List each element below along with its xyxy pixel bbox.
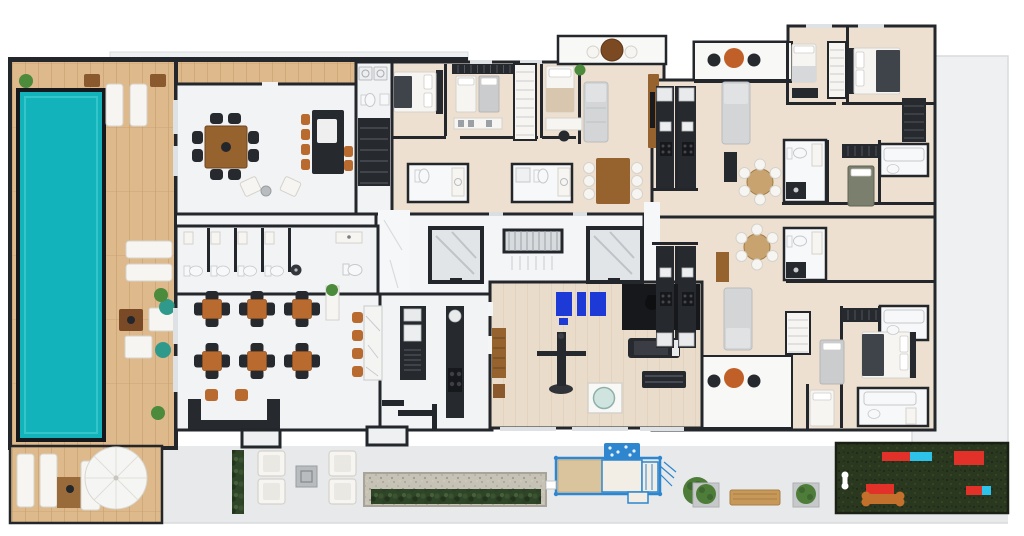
- shrub-foliage-4: [807, 494, 813, 500]
- pool: [18, 90, 104, 440]
- gourmet-island-stools-2: [301, 129, 310, 140]
- a-bed3-blanket: [546, 88, 574, 112]
- gourmet-island-stools-6: [344, 160, 353, 171]
- interior-walls-4: [392, 136, 446, 139]
- cable-machine-pulley: [558, 333, 564, 339]
- b-guest-pillow: [851, 169, 871, 176]
- kitchen-island-stools-3: [352, 348, 363, 359]
- deck-plants-green-1: [154, 288, 168, 302]
- exercise-ball: [594, 388, 615, 409]
- a-bed3-pillow: [549, 69, 571, 77]
- interior-walls-2: [540, 64, 543, 138]
- a-desk-books-1: [458, 120, 464, 127]
- gourmet-dining-chairs-3: [210, 169, 223, 180]
- a-dining-chairs-2: [584, 176, 595, 187]
- c-balcony-chairs-2: [748, 375, 761, 388]
- dining-table-top: [203, 300, 222, 319]
- stall-sink: [211, 232, 220, 244]
- core-door-mats-1: [489, 212, 503, 216]
- b-balcony-table: [724, 48, 744, 68]
- patio-planter-boxes-2: [367, 427, 407, 445]
- c-balcony-table: [724, 368, 744, 388]
- sun-loungers-north-1: [106, 84, 123, 126]
- a-dining-chairs-3: [584, 189, 595, 200]
- a-dining-table: [596, 158, 630, 204]
- a-desk-books-3: [486, 120, 492, 127]
- shrub-foliage-1: [699, 487, 705, 493]
- climbing-holds-5: [610, 453, 613, 456]
- dining-table-top: [248, 300, 267, 319]
- gym-exercise-mats-3: [590, 292, 606, 316]
- hedge-vertical: [232, 450, 244, 514]
- kitchen-island-stools-2: [352, 330, 363, 341]
- deck-seat-pads-2: [125, 336, 152, 358]
- dining-table-top: [248, 352, 267, 371]
- agility-hurdle-cyan: [982, 486, 991, 495]
- stall-partition: [207, 228, 210, 272]
- window-glazing-1: [173, 100, 178, 134]
- elevator-sills-1: [450, 278, 462, 283]
- b-bath1-vanity: [812, 144, 822, 166]
- deck-table-bowl: [127, 316, 135, 324]
- pool-side-tables-1: [84, 74, 100, 87]
- coffee-bar-counter-3: [188, 420, 280, 429]
- a-bath2-shower: [516, 168, 530, 182]
- dumbbell-rack: [642, 371, 686, 388]
- playground-sandpit: [558, 460, 602, 492]
- playground-ladder: [546, 481, 556, 489]
- c-stove-burners-8: [690, 301, 693, 304]
- gourmet-island-stools-1: [301, 114, 310, 125]
- b-stove-burners-7: [684, 151, 687, 154]
- sun-loungers-south-2: [40, 454, 57, 507]
- climbing-holds-4: [632, 449, 635, 452]
- c-bath2-toilet: [887, 326, 899, 335]
- shrubs-1: [696, 484, 716, 504]
- floor-plan-stage: [0, 0, 1024, 536]
- a-balcony-chairs-2: [625, 46, 637, 58]
- gourmet-dining-chairs-6: [192, 149, 203, 162]
- c-guest-pillow: [813, 393, 831, 400]
- gourmet-centerpiece: [221, 142, 231, 152]
- interior-walls-24: [675, 86, 678, 188]
- c-tv-stand: [716, 252, 729, 282]
- agility-jump-cyan: [910, 452, 932, 461]
- sun-loungers-mid-2: [126, 264, 172, 281]
- kitchen-counter-east: [446, 306, 464, 418]
- b-dining-table: [747, 169, 773, 195]
- b-bath2-toilet: [887, 165, 899, 174]
- b-closet-east: [902, 98, 926, 142]
- shrubs-2: [796, 484, 816, 504]
- stall-partition: [261, 228, 264, 272]
- kitchen-east-sink: [449, 310, 461, 322]
- parasol-pole: [114, 476, 119, 481]
- b-stove-burners-8: [690, 151, 693, 154]
- patio-armchair-cushions-4: [334, 483, 351, 500]
- b-kitchen-sinks-1: [660, 122, 671, 131]
- a-desk-books-2: [468, 120, 474, 127]
- b-bath2-tub: [884, 148, 924, 161]
- b-tv-stand: [724, 152, 737, 182]
- b-balcony-chairs-1: [708, 54, 721, 67]
- b-dining-chairs-4: [755, 194, 766, 205]
- gym-exercise-mats-4: [559, 318, 568, 325]
- a-single-pillow-1: [458, 78, 474, 85]
- deck-plants-teal-2: [155, 342, 171, 358]
- playground-slide: [642, 462, 658, 492]
- potted-plant-nw: [19, 74, 33, 88]
- c-dining-chairs-3: [767, 251, 778, 262]
- interior-walls-1: [444, 64, 447, 136]
- a-bath1-vanity: [452, 168, 464, 196]
- a-tv-screen: [650, 92, 655, 128]
- playground-posts-2: [658, 456, 662, 460]
- c-bath1-showerhead: [794, 268, 799, 273]
- a-dining-chairs-4: [632, 163, 643, 174]
- gourmet-dining-chairs-8: [248, 149, 259, 162]
- window-glazing-2: [173, 146, 178, 176]
- b-stove-burners-5: [684, 145, 687, 148]
- small-bone-ends-1: [842, 472, 849, 479]
- gym-exercise-mats-1: [556, 292, 572, 316]
- lobby-marble-strip: [378, 210, 410, 298]
- floor-plan-canvas: [0, 0, 1024, 536]
- gym-exercise-mats-2: [577, 292, 586, 316]
- c-bath3-toilet: [868, 410, 880, 419]
- b-kitchen-stoves-2: [682, 142, 694, 156]
- deck-plants-green-2: [151, 406, 165, 420]
- kitchen-island-stools-1: [352, 312, 363, 323]
- umbrella-side-table: [66, 485, 74, 493]
- a-bath2-toilet: [538, 169, 548, 183]
- agility-jump-red: [882, 452, 910, 461]
- window-glazing-4: [173, 356, 178, 392]
- c-stove-burners-1: [662, 295, 665, 298]
- b-single-pillow: [794, 46, 814, 53]
- stove-burners-2: [457, 372, 461, 376]
- playground-posts-3: [554, 492, 558, 496]
- a-plant: [575, 65, 586, 76]
- climbing-holds-1: [608, 446, 611, 449]
- toilet-bowl: [217, 266, 230, 276]
- b-kitchen-fridges-1: [657, 88, 672, 101]
- c-kitchen-stoves-1: [660, 292, 672, 306]
- a-bed-headboard: [436, 70, 443, 114]
- c-stove-burners-6: [690, 295, 693, 298]
- patio-planter-boxes-1: [242, 430, 280, 447]
- c-bath1-toilet: [794, 236, 807, 246]
- a-bath1-toilet: [419, 169, 429, 183]
- gourmet-island-stools-3: [301, 144, 310, 155]
- c-dining-chairs-4: [752, 259, 763, 270]
- a-sofa-chaise: [586, 84, 606, 102]
- swimming-pool: [18, 90, 104, 440]
- gourmet-island-stools-5: [344, 146, 353, 157]
- sun-loungers-south-1: [17, 454, 34, 507]
- b-dining-chairs-1: [755, 159, 766, 170]
- dining-table-top: [293, 300, 312, 319]
- door-openings-1: [262, 82, 278, 87]
- small-bone-ends-2: [842, 483, 849, 490]
- playground-posts-1: [554, 456, 558, 460]
- b-kitchen-fridges-2: [679, 88, 694, 101]
- interior-walls-15: [652, 188, 698, 191]
- stove-burners-3: [450, 382, 454, 386]
- accessible-toilet-bowl: [348, 265, 362, 276]
- climbing-holds-3: [624, 445, 627, 448]
- climbing-holds-2: [616, 450, 619, 453]
- c-dresser: [786, 312, 810, 354]
- shrub-foliage-3: [799, 487, 805, 493]
- dining-table-top: [293, 352, 312, 371]
- patio-armchair-cushions-2: [263, 483, 280, 500]
- gourmet-island-sink: [317, 119, 337, 143]
- a-dining-chairs-1: [584, 163, 595, 174]
- floor-drain-cap: [294, 268, 297, 271]
- c-kitchen-fridges-1: [657, 333, 672, 346]
- interior-walls-3: [578, 64, 581, 144]
- toilet-bowl: [271, 266, 284, 276]
- stall-sink: [238, 232, 247, 244]
- service-wc-sink: [380, 94, 389, 105]
- window-glazing-5: [500, 427, 556, 431]
- a-desk-chair: [559, 131, 570, 142]
- c-balcony-chairs-1: [708, 375, 721, 388]
- gourmet-dining-chairs-4: [228, 169, 241, 180]
- gym-door-openings-2: [488, 302, 493, 316]
- laundry-machines-1: [359, 67, 372, 80]
- playground-step: [628, 492, 648, 503]
- c-master-headboard: [910, 332, 916, 378]
- b-master-blanket: [876, 50, 900, 92]
- patio-armchair-cushions-1: [263, 455, 280, 472]
- interior-walls-22: [398, 410, 436, 416]
- a-wardrobe-east: [514, 64, 536, 140]
- stove-burners-1: [450, 372, 454, 376]
- coffee-bar-stools-2: [235, 389, 248, 401]
- interior-walls-16: [786, 280, 936, 283]
- toilet-bowl: [244, 266, 257, 276]
- c-master-pillows-2: [900, 354, 908, 370]
- b-bath1-toilet: [794, 148, 807, 158]
- a-master-pillows-1: [424, 75, 432, 89]
- c-dining-chairs-6: [736, 233, 747, 244]
- a-desk-2: [546, 118, 582, 130]
- c-sofa-chaise: [726, 328, 750, 348]
- playground-platform: [602, 460, 642, 492]
- interior-walls-23: [432, 404, 437, 430]
- c-bath3-tub: [864, 392, 916, 405]
- b-stove-burners-4: [668, 151, 671, 154]
- c-dining-chairs-1: [752, 224, 763, 235]
- toilet-bowl: [190, 266, 203, 276]
- interior-walls-12: [826, 140, 829, 204]
- c-stove-burners-7: [684, 301, 687, 304]
- c-stove-burners-2: [668, 295, 671, 298]
- b-stove-burners-2: [668, 145, 671, 148]
- c-bath2-tub: [884, 310, 924, 323]
- a-dining-chairs-6: [632, 189, 643, 200]
- gourmet-dining-chairs-7: [248, 131, 259, 144]
- patio-armchair-cushions-3: [334, 455, 351, 472]
- b-stove-burners-3: [662, 151, 665, 154]
- b-bath1-tank: [787, 148, 792, 159]
- gourmet-dining-chairs-2: [228, 113, 241, 124]
- stall-sink: [184, 232, 193, 244]
- gourmet-dining-chairs-1: [210, 113, 223, 124]
- a-master-blanket: [394, 76, 412, 108]
- a-single-pillow-2: [481, 78, 497, 85]
- c-kitchen-fridges-2: [679, 333, 694, 346]
- patio-coffee-table: [296, 466, 317, 487]
- a-bath2-vanity: [558, 168, 570, 196]
- c-kitchen-sinks-2: [682, 268, 693, 277]
- c-bath1-vanity: [812, 232, 822, 254]
- shrub-foliage-2: [707, 494, 713, 500]
- sun-loungers-north-2: [130, 84, 147, 126]
- c-stove-burners-4: [668, 301, 671, 304]
- gourmet-dining-chairs-5: [192, 131, 203, 144]
- climbing-holds-6: [628, 453, 631, 456]
- b-desk: [792, 88, 818, 98]
- a-master-pillows-2: [424, 93, 432, 107]
- interior-walls-7: [786, 42, 789, 102]
- a-balcony-table: [601, 39, 623, 61]
- lounge-side-table: [261, 186, 271, 196]
- agility-hurdle-red: [966, 486, 982, 495]
- agility-box-1: [954, 451, 984, 465]
- kitchen-west-sink: [404, 325, 421, 341]
- dog-bone-ends-4: [896, 498, 905, 507]
- window-glazing-9: [858, 24, 884, 28]
- coffee-bar-stools-1: [205, 389, 218, 401]
- window-glazing-7: [640, 427, 684, 431]
- gym-shelf: [492, 328, 506, 378]
- a-dining-chairs-5: [632, 176, 643, 187]
- b-master-headboard: [848, 48, 854, 94]
- laundry-machines-2: [374, 67, 387, 80]
- core-door-mats-2: [573, 212, 587, 216]
- dog-bone-toy: [866, 494, 900, 504]
- c-master-pillows-1: [900, 336, 908, 352]
- dining-table-top: [203, 352, 222, 371]
- c-single-pillow: [823, 343, 841, 350]
- b-bath1-showerhead: [794, 188, 799, 193]
- elevator-sills-2: [608, 278, 620, 283]
- stall-partition: [288, 228, 291, 272]
- c-dining-chairs-5: [736, 251, 747, 262]
- pet-area: [836, 443, 1008, 513]
- b-stove-burners-1: [662, 145, 665, 148]
- gym-bench: [493, 384, 505, 398]
- b-dining-chairs-6: [739, 168, 750, 179]
- garden-bench: [730, 490, 780, 505]
- c-bath3-vanity: [906, 408, 916, 424]
- b-dining-chairs-5: [739, 186, 750, 197]
- planter-hedge: [371, 489, 541, 504]
- b-kitchen-stoves-1: [660, 142, 672, 156]
- window-glazing-3: [173, 308, 178, 344]
- dog-bone-ends-2: [862, 498, 871, 507]
- b-dining-chairs-3: [770, 186, 781, 197]
- interior-walls-21: [382, 400, 404, 406]
- c-stove-burners-5: [684, 295, 687, 298]
- dining-plant: [326, 284, 338, 296]
- b-stove-burners-6: [690, 145, 693, 148]
- service-wc-toilet: [365, 94, 375, 107]
- playground-posts-4: [658, 492, 662, 496]
- c-dining-table: [744, 234, 770, 260]
- c-kitchen-sinks-1: [660, 268, 671, 277]
- stove-burners-4: [457, 382, 461, 386]
- gourmet-island-stools-4: [301, 159, 310, 170]
- b-master-pillows-1: [856, 52, 864, 68]
- pool-side-tables-2: [150, 74, 166, 87]
- window-glazing-8: [806, 24, 832, 28]
- window-glazing-6: [572, 427, 628, 431]
- b-balcony-chairs-2: [748, 54, 761, 67]
- c-dining-chairs-2: [767, 233, 778, 244]
- c-kitchen-stoves-2: [682, 292, 694, 306]
- b-kitchen-sinks-2: [682, 122, 693, 131]
- apartment-c-balcony: [694, 356, 792, 428]
- stall-sink: [265, 232, 274, 244]
- b-sofa-chaise: [724, 84, 748, 104]
- c-master-blanket: [862, 334, 884, 376]
- c-bath1-tank: [787, 236, 792, 247]
- b-dining-chairs-2: [770, 168, 781, 179]
- a-wardrobe-north: [452, 64, 514, 74]
- kitchen-west-appliance: [404, 309, 421, 321]
- window-glazing-10: [470, 60, 492, 64]
- b-single-blanket: [792, 66, 816, 82]
- interior-walls-19: [806, 384, 809, 430]
- cable-machine-bar: [537, 351, 586, 356]
- interior-walls-20: [652, 242, 698, 245]
- kitchen-island-stools-4: [352, 366, 363, 377]
- interior-walls-10: [786, 102, 836, 105]
- kitchen-stove: [448, 368, 462, 392]
- b-master-pillows-2: [856, 70, 864, 86]
- sun-loungers-mid-1: [126, 241, 172, 258]
- cable-machine-base: [549, 384, 573, 394]
- cable-machine-pole: [557, 332, 566, 386]
- c-stove-burners-3: [662, 301, 665, 304]
- a-balcony-chairs-1: [587, 46, 599, 58]
- stall-partition: [234, 228, 237, 272]
- wash-faucet: [347, 235, 351, 239]
